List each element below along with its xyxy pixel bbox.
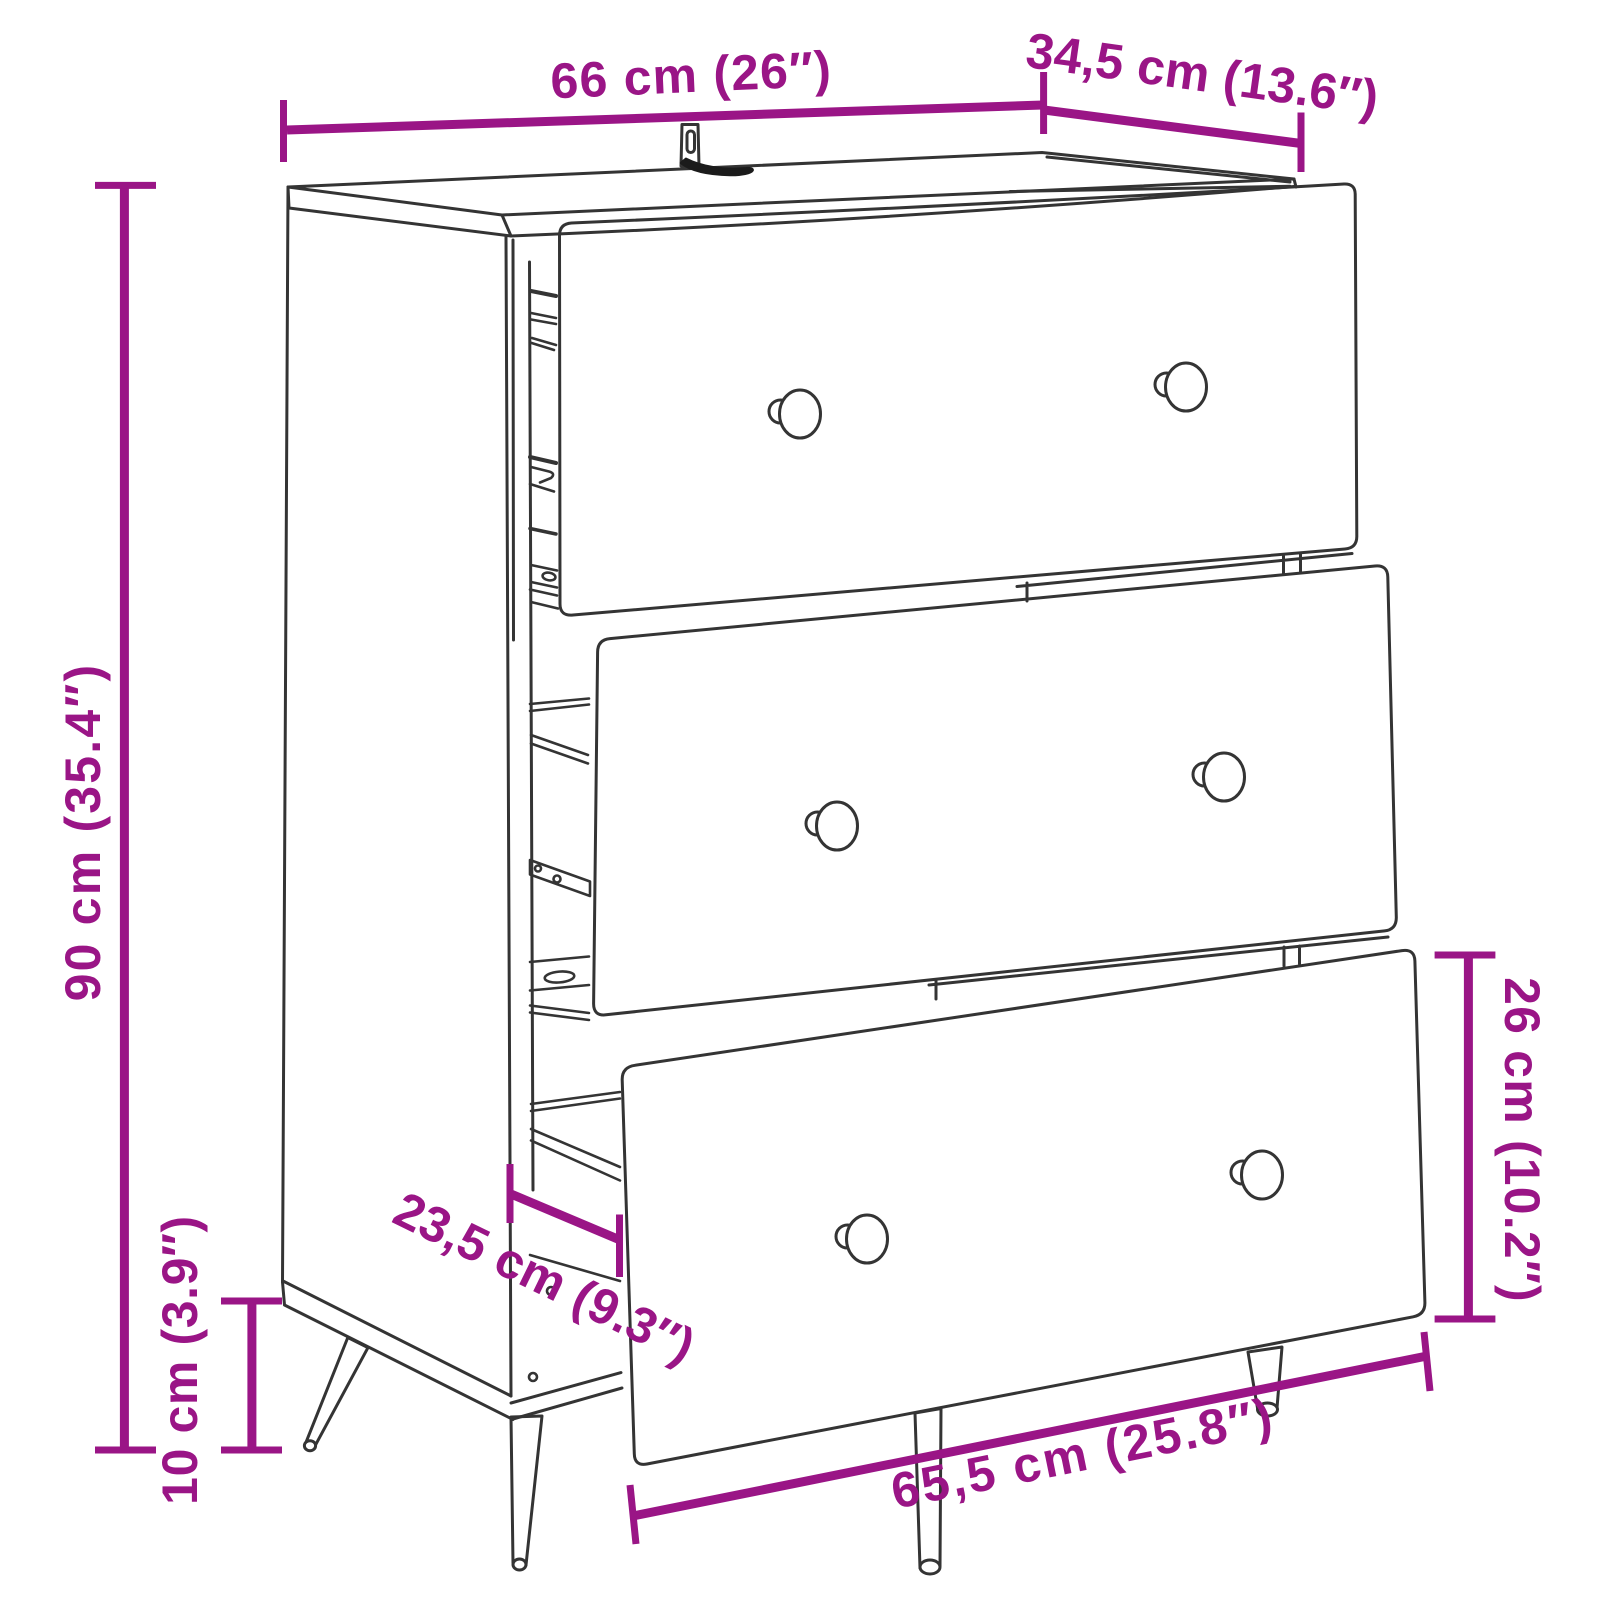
svg-text:90 cm (35.4″): 90 cm (35.4″) [55, 663, 111, 1002]
svg-text:10 cm (3.9″): 10 cm (3.9″) [152, 1215, 208, 1505]
svg-text:26 cm (10.2″): 26 cm (10.2″) [1494, 977, 1550, 1303]
